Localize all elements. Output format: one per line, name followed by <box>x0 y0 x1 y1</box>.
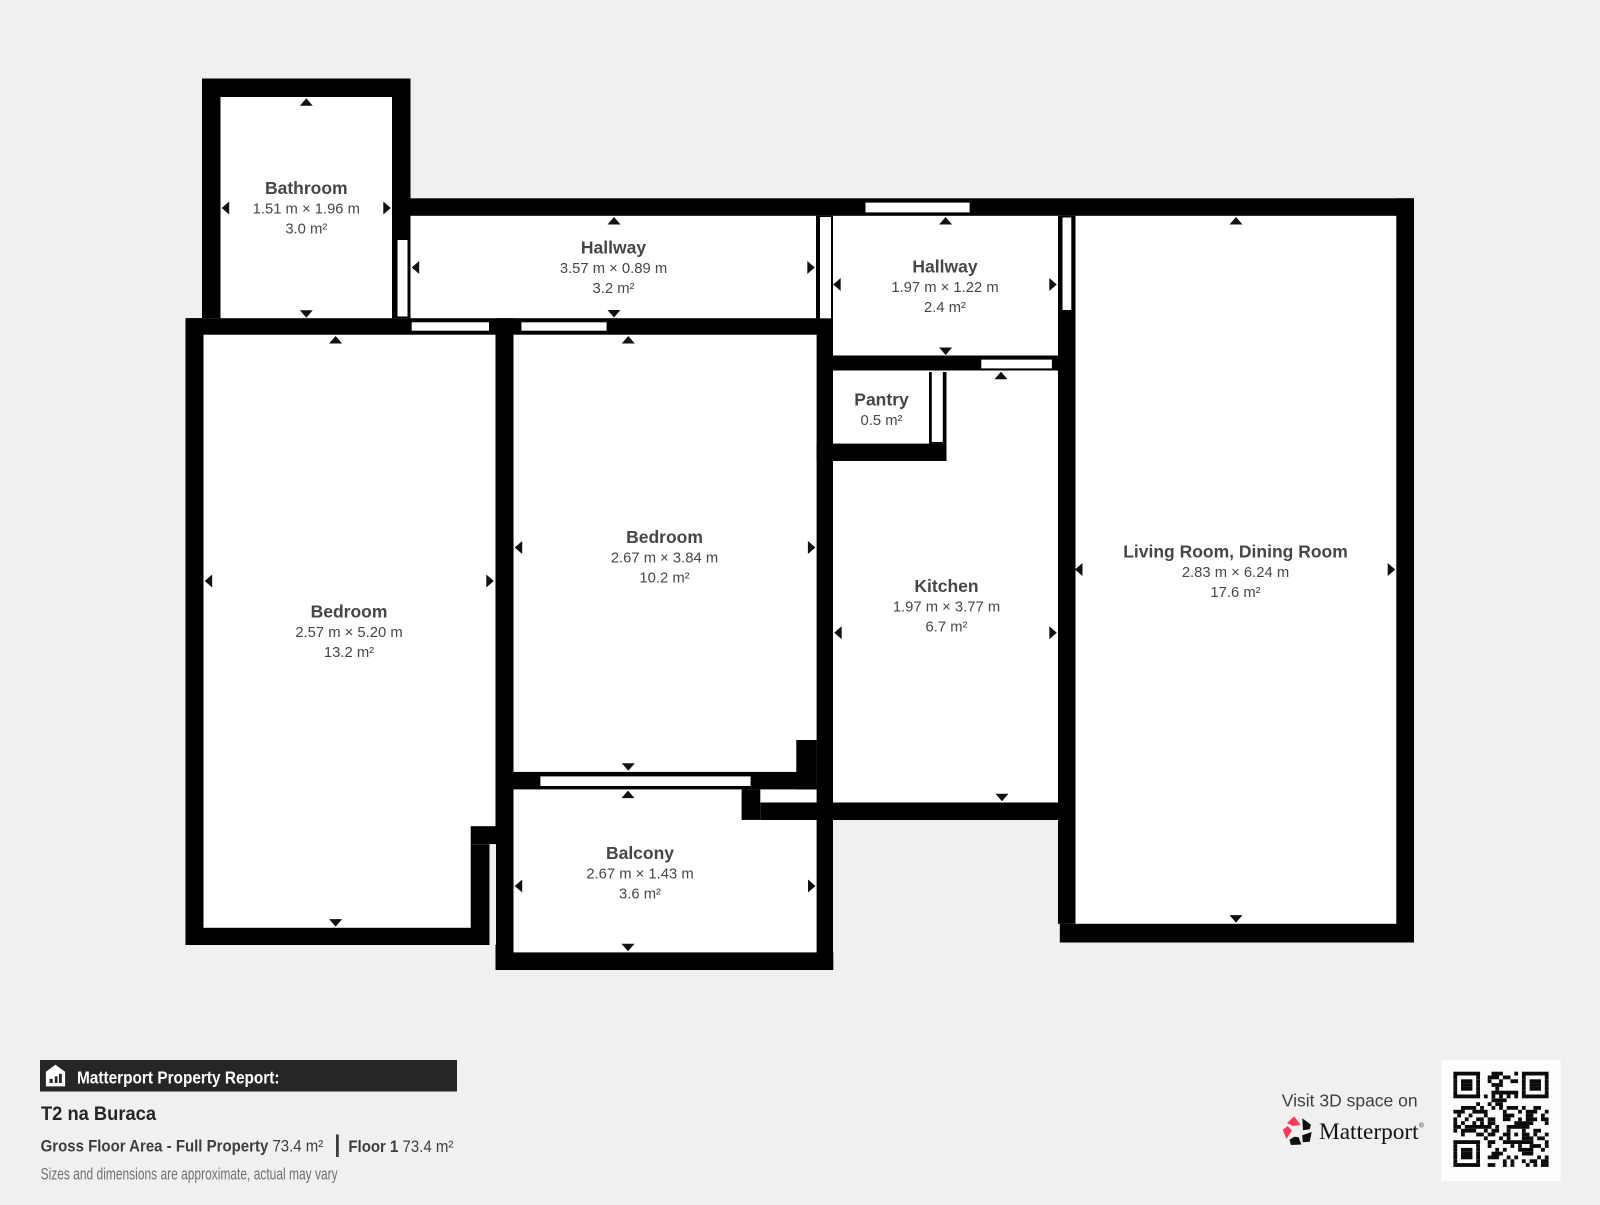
svg-text:Hallway: Hallway <box>912 256 977 276</box>
svg-text:T2 na Buraca: T2 na Buraca <box>41 1104 156 1126</box>
svg-text:2.83 m × 6.24 m: 2.83 m × 6.24 m <box>1182 565 1289 581</box>
svg-text:0.5 m²: 0.5 m² <box>861 413 903 429</box>
svg-text:Hallway: Hallway <box>581 237 646 257</box>
svg-text:Kitchen: Kitchen <box>914 576 978 596</box>
svg-text:Floor 1 73.4 m²: Floor 1 73.4 m² <box>348 1138 453 1156</box>
svg-text:Visit 3D space on: Visit 3D space on <box>1282 1090 1418 1110</box>
svg-text:3.2 m²: 3.2 m² <box>593 281 635 297</box>
svg-text:Living Room, Dining Room: Living Room, Dining Room <box>1123 541 1348 561</box>
svg-text:Matterport Property Report:: Matterport Property Report: <box>77 1067 280 1087</box>
svg-text:1.97 m × 3.77 m: 1.97 m × 3.77 m <box>893 600 1000 616</box>
svg-text:Balcony: Balcony <box>606 843 674 863</box>
svg-text:6.7 m²: 6.7 m² <box>926 619 968 635</box>
svg-text:Pantry: Pantry <box>854 389 909 409</box>
svg-text:Bedroom: Bedroom <box>311 601 388 621</box>
svg-text:2.57 m × 5.20 m: 2.57 m × 5.20 m <box>295 625 402 641</box>
svg-text:Sizes and dimensions are appro: Sizes and dimensions are approximate, ac… <box>41 1166 339 1184</box>
svg-text:Bedroom: Bedroom <box>626 527 703 547</box>
svg-text:2.67 m × 3.84 m: 2.67 m × 3.84 m <box>611 551 718 567</box>
svg-text:2.4 m²: 2.4 m² <box>924 300 966 316</box>
svg-text:1.97 m × 1.22 m: 1.97 m × 1.22 m <box>891 280 998 296</box>
svg-text:3.6 m²: 3.6 m² <box>619 886 661 902</box>
svg-text:®: ® <box>1419 1123 1424 1130</box>
svg-text:Gross Floor Area - Full Proper: Gross Floor Area - Full Property 73.4 m² <box>41 1138 324 1156</box>
svg-text:Bathroom: Bathroom <box>265 178 348 198</box>
svg-text:3.0 m²: 3.0 m² <box>285 222 327 238</box>
svg-text:13.2 m²: 13.2 m² <box>324 645 374 661</box>
svg-text:10.2 m²: 10.2 m² <box>639 570 689 586</box>
svg-text:1.51 m × 1.96 m: 1.51 m × 1.96 m <box>253 202 360 218</box>
svg-text:3.57 m × 0.89 m: 3.57 m × 0.89 m <box>560 261 667 277</box>
svg-text:17.6 m²: 17.6 m² <box>1210 585 1260 601</box>
svg-text:2.67 m × 1.43 m: 2.67 m × 1.43 m <box>586 867 693 883</box>
svg-text:Matterport: Matterport <box>1319 1119 1419 1145</box>
